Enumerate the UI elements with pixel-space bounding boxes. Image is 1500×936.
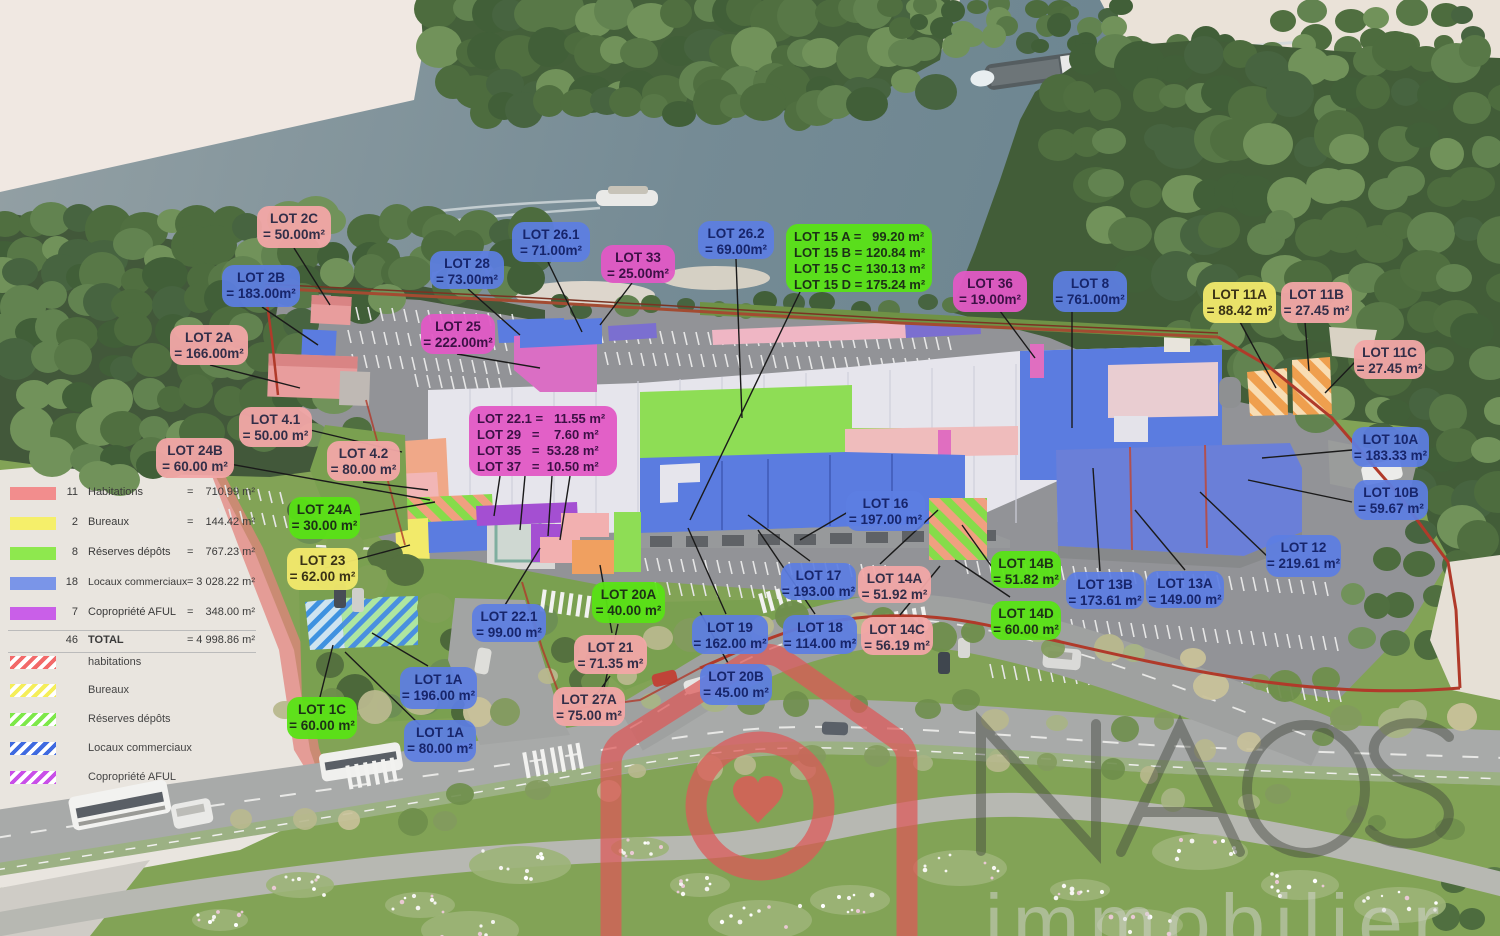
svg-text:immobilier: immobilier <box>985 878 1450 936</box>
